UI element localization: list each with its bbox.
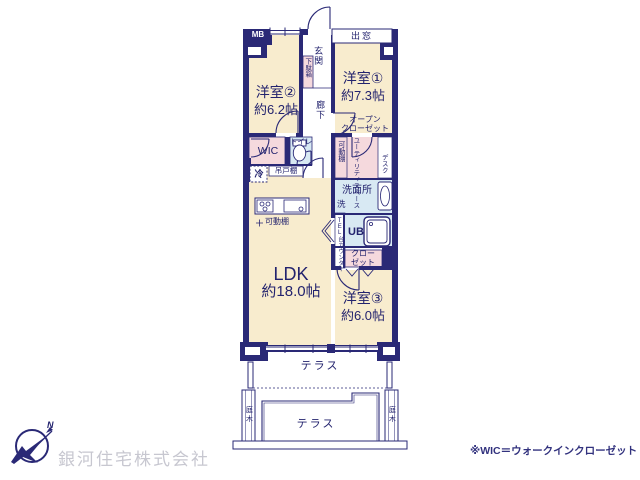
room-ldk-name: LDK (252, 264, 330, 284)
room-western2-name: 洋室② (247, 85, 305, 101)
utility-space-label: ユーティリティスペース (351, 137, 358, 179)
entrance-door-arc (308, 7, 330, 29)
terrace (233, 362, 407, 449)
terrace-lower-outline (262, 393, 379, 441)
unit-bath-label: UB (347, 226, 365, 238)
room-ldk-floor (249, 167, 331, 345)
hanging-cupboard-label: 吊戸棚 (269, 167, 303, 175)
terrace-rail-right (387, 362, 392, 388)
floorplan-canvas: MB 出窓 洋室① 約7.3帖 洋室② 約6.2帖 玄関 下駄箱 廊下 オープン… (0, 0, 640, 480)
window-mullion (327, 344, 335, 353)
refrigerator-label: 冷 (251, 169, 267, 179)
washbasin-icon (378, 182, 392, 210)
room-western1-size: 約7.3帖 (333, 89, 393, 104)
entrance-label: 玄関 (313, 46, 323, 76)
kitchen-icon (255, 198, 309, 214)
washroom-label: 洗面所 (336, 185, 378, 196)
hallway-label: 廊下 (315, 100, 325, 126)
open-closet-label: オープン クローゼット (338, 116, 392, 134)
bathtub-icon (364, 217, 390, 246)
company-name: 銀河住宅株式会社 (58, 450, 210, 469)
room-western3-size: 約6.0帖 (335, 309, 391, 324)
wic-label: WIC (251, 146, 285, 158)
movable-shelf-horizontal-label: 可動棚 (265, 218, 289, 227)
washer-label: 洗 (337, 200, 346, 210)
terrace-upper-label: テラス (292, 360, 348, 372)
meter-box-label: MB (245, 31, 271, 40)
shoe-cabinet-label: 下駄箱 (304, 58, 311, 86)
counter-label: カウンター (336, 242, 343, 268)
closet-side-wall (382, 248, 392, 267)
compass-logo (11, 427, 53, 464)
compass-north-label: N (47, 420, 54, 430)
terrace-lower-label: テラス (288, 418, 344, 430)
room-western1-name: 洋室① (333, 71, 393, 87)
toilet-label: トイレ (289, 138, 313, 146)
tel-stand-label: TEL台 (336, 218, 343, 242)
room-western3-name: 洋室③ (335, 291, 391, 307)
garden-tree-left-label: 庭木 (245, 406, 253, 436)
wic-note: ※WIC＝ウォークインクローゼット (470, 446, 637, 458)
movable-shelf-vertical-label: 可動棚 (337, 141, 345, 173)
room-ldk-size: 約18.0帖 (252, 284, 330, 301)
closet-label: クロー ゼット (346, 250, 380, 268)
bay-window-label: 出窓 (332, 31, 392, 41)
room-western2-size: 約6.2帖 (247, 103, 305, 118)
desk-label: デスク (380, 154, 387, 178)
garden-tree-right-label: 庭木 (388, 406, 396, 436)
terrace-base-slab (233, 441, 407, 449)
terrace-rail-left (248, 362, 253, 388)
